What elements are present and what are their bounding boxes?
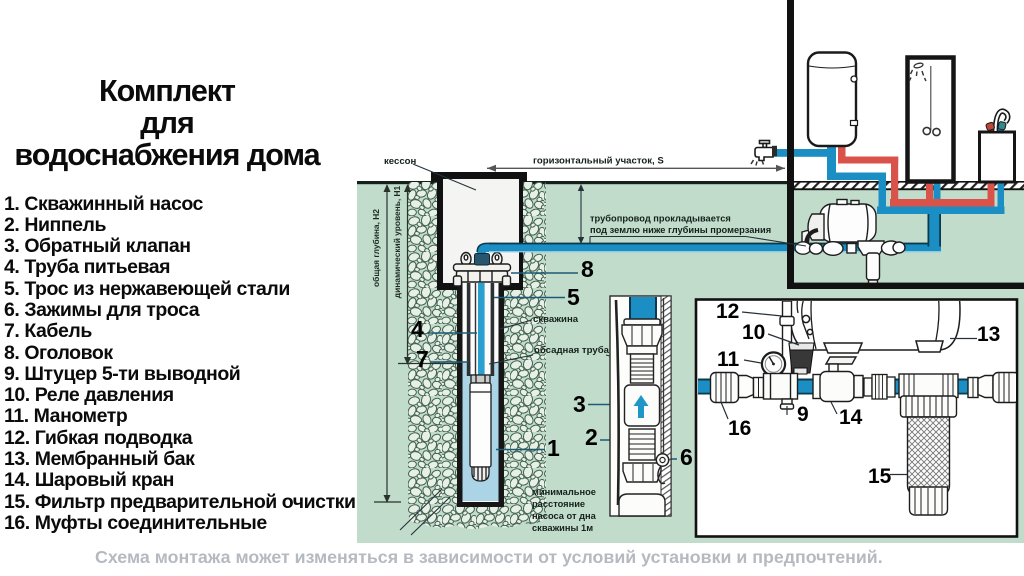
svg-text:4: 4: [411, 316, 424, 342]
svg-text:скважина: скважина: [533, 314, 579, 325]
svg-text:11: 11: [717, 348, 740, 371]
svg-text:горизонтальный участок, S: горизонтальный участок, S: [533, 156, 664, 167]
svg-text:минимальное: минимальное: [532, 487, 596, 497]
svg-text:12: 12: [716, 300, 739, 323]
svg-text:под землю ниже глубины промерз: под землю ниже глубины промерзания: [590, 225, 771, 235]
svg-text:9: 9: [797, 403, 809, 426]
svg-text:8: 8: [581, 256, 594, 282]
svg-text:15: 15: [868, 465, 892, 488]
svg-text:трубопровод прокладывается: трубопровод прокладывается: [590, 214, 731, 224]
svg-text:расстояние: расстояние: [532, 499, 585, 509]
svg-text:16: 16: [728, 417, 751, 440]
svg-text:3: 3: [573, 391, 586, 417]
svg-text:13: 13: [977, 323, 1000, 346]
svg-text:общая глубина, Н2: общая глубина, Н2: [371, 209, 381, 287]
svg-text:обсадная труба: обсадная труба: [534, 345, 610, 356]
svg-text:7: 7: [416, 346, 429, 372]
svg-text:2: 2: [585, 424, 598, 450]
svg-text:динамический уровень, Н1: динамический уровень, Н1: [392, 185, 402, 298]
svg-text:14: 14: [839, 406, 863, 429]
svg-text:5: 5: [567, 284, 580, 310]
svg-text:скважины 1м: скважины 1м: [532, 523, 593, 533]
svg-text:насоса от дна: насоса от дна: [532, 511, 597, 521]
svg-text:10: 10: [742, 321, 765, 344]
svg-text:кессон: кессон: [384, 156, 417, 167]
svg-text:6: 6: [680, 444, 693, 470]
svg-text:1: 1: [547, 435, 560, 461]
